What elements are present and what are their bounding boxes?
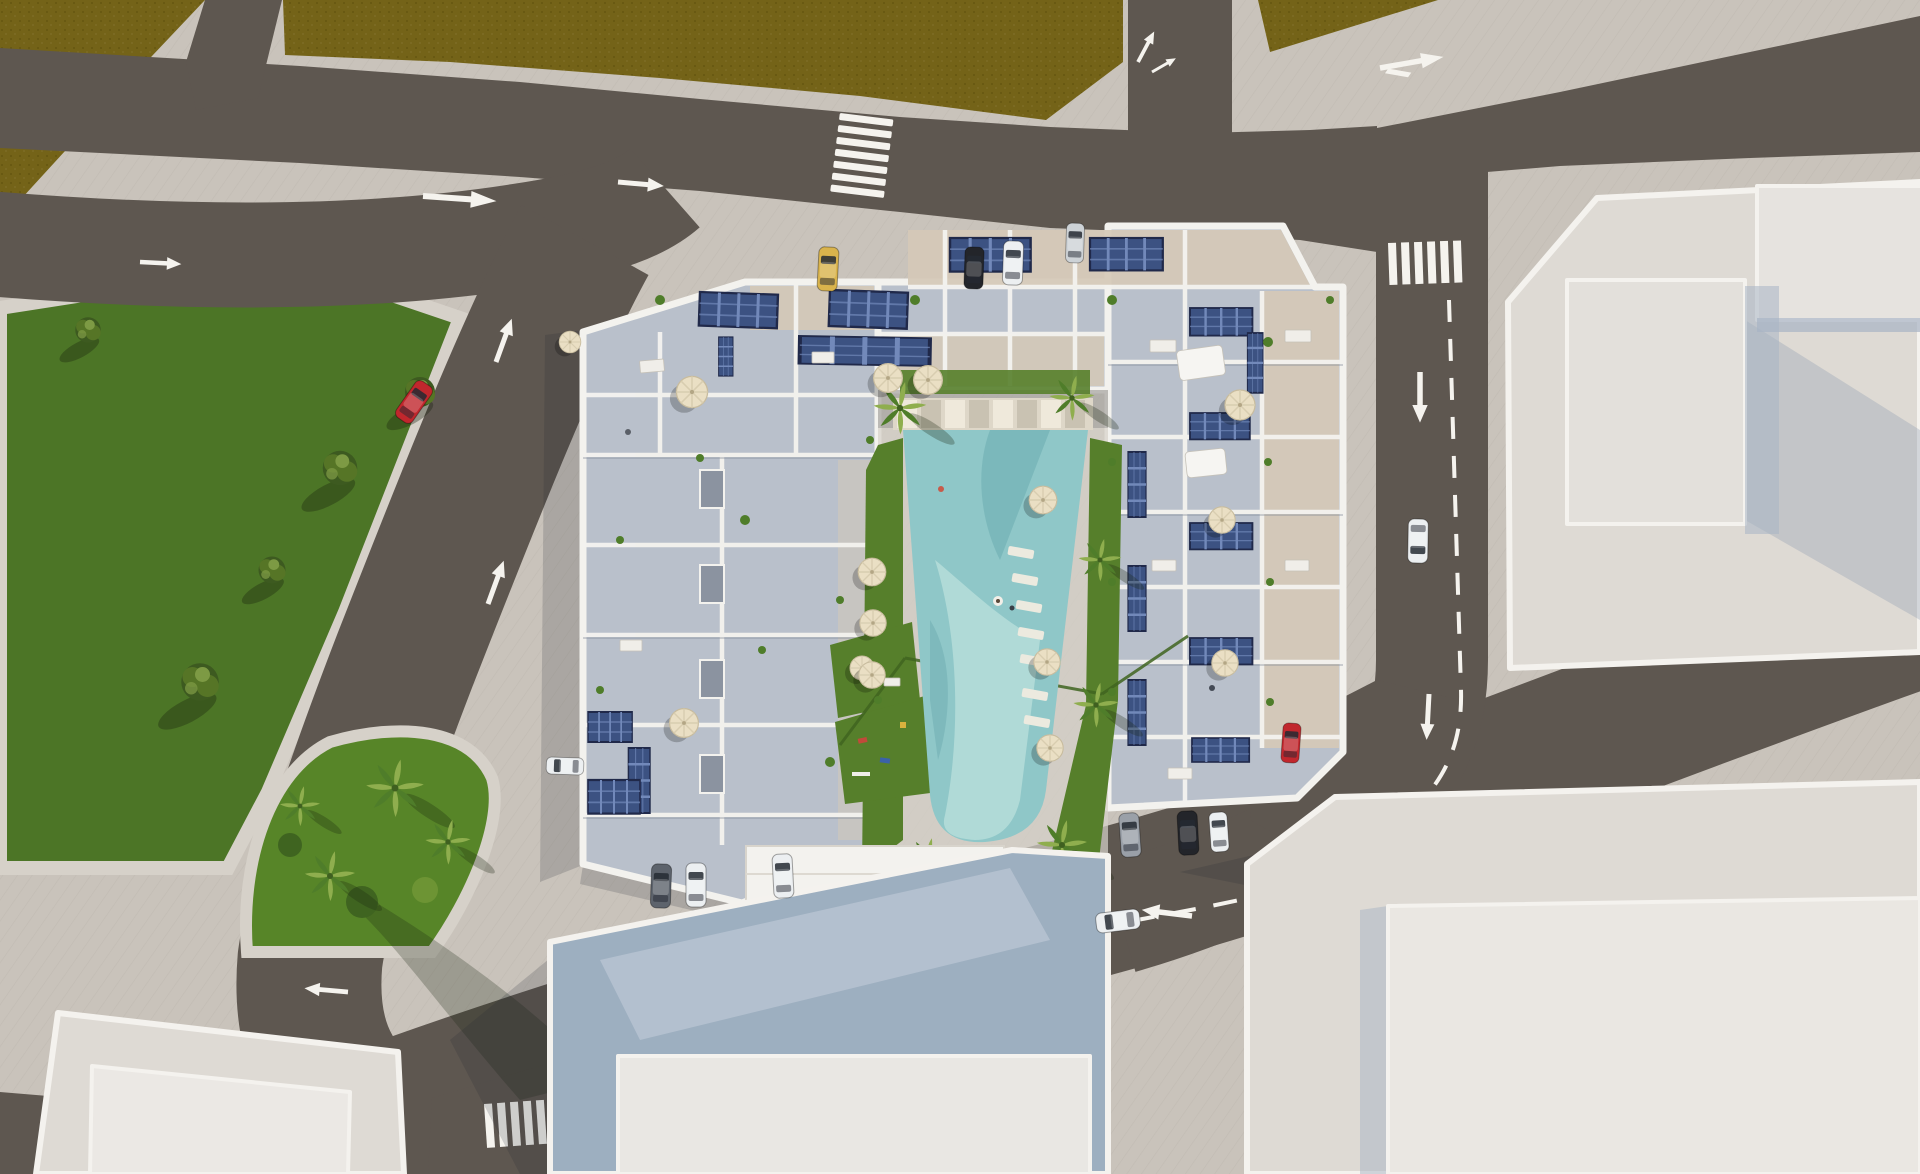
roof-edge-shadow [1360,906,1388,1174]
raised-roof-section [1388,898,1920,1174]
solar-panel [1128,452,1146,517]
swimmer [1010,606,1015,611]
scene-canvas [0,0,1920,1174]
car-white-south-left-2 [772,854,794,899]
car-gray-south-right [1118,812,1141,857]
warehouse-top-right [1508,182,1920,668]
car-red-southeast [1281,723,1302,764]
car-black-south-right [1177,811,1199,856]
warehouse-bottom-right [1180,782,1920,1174]
car-white-driving-east-road [1408,519,1429,563]
car-gray-south-left [650,864,672,909]
solar-panel [1190,308,1252,336]
car-silver-north [1065,223,1084,263]
car-yellow-north [817,247,839,292]
bush [412,877,438,903]
car-white-south-right [1209,812,1230,853]
car-white-west-facade [546,757,584,775]
solar-panel [588,712,632,742]
road-north-branch [1128,0,1232,142]
swimmer [996,599,1000,603]
solar-panel [699,292,778,328]
bush [278,833,302,857]
raised-roof-section [1567,280,1745,524]
solar-panel [1247,333,1263,393]
raised-roof-section [618,1056,1090,1174]
west-wall-shadow [540,330,583,882]
terrace-floor [1262,291,1339,748]
solar-panel [1192,738,1249,762]
solar-panel [1090,238,1163,270]
raised-roof-section [1757,186,1920,320]
solar-panel [588,780,640,814]
car-white-south-left [686,863,706,907]
roof-edge-shadow [1745,286,1779,534]
car-black-north [964,247,984,289]
roof-edge-shadow [1757,318,1920,332]
car-white-north [1002,241,1024,286]
solar-panel [829,290,908,329]
aerial-render: Top-down bird's-eye 3D render of a white… [0,0,1920,1174]
solar-panel [719,337,733,376]
